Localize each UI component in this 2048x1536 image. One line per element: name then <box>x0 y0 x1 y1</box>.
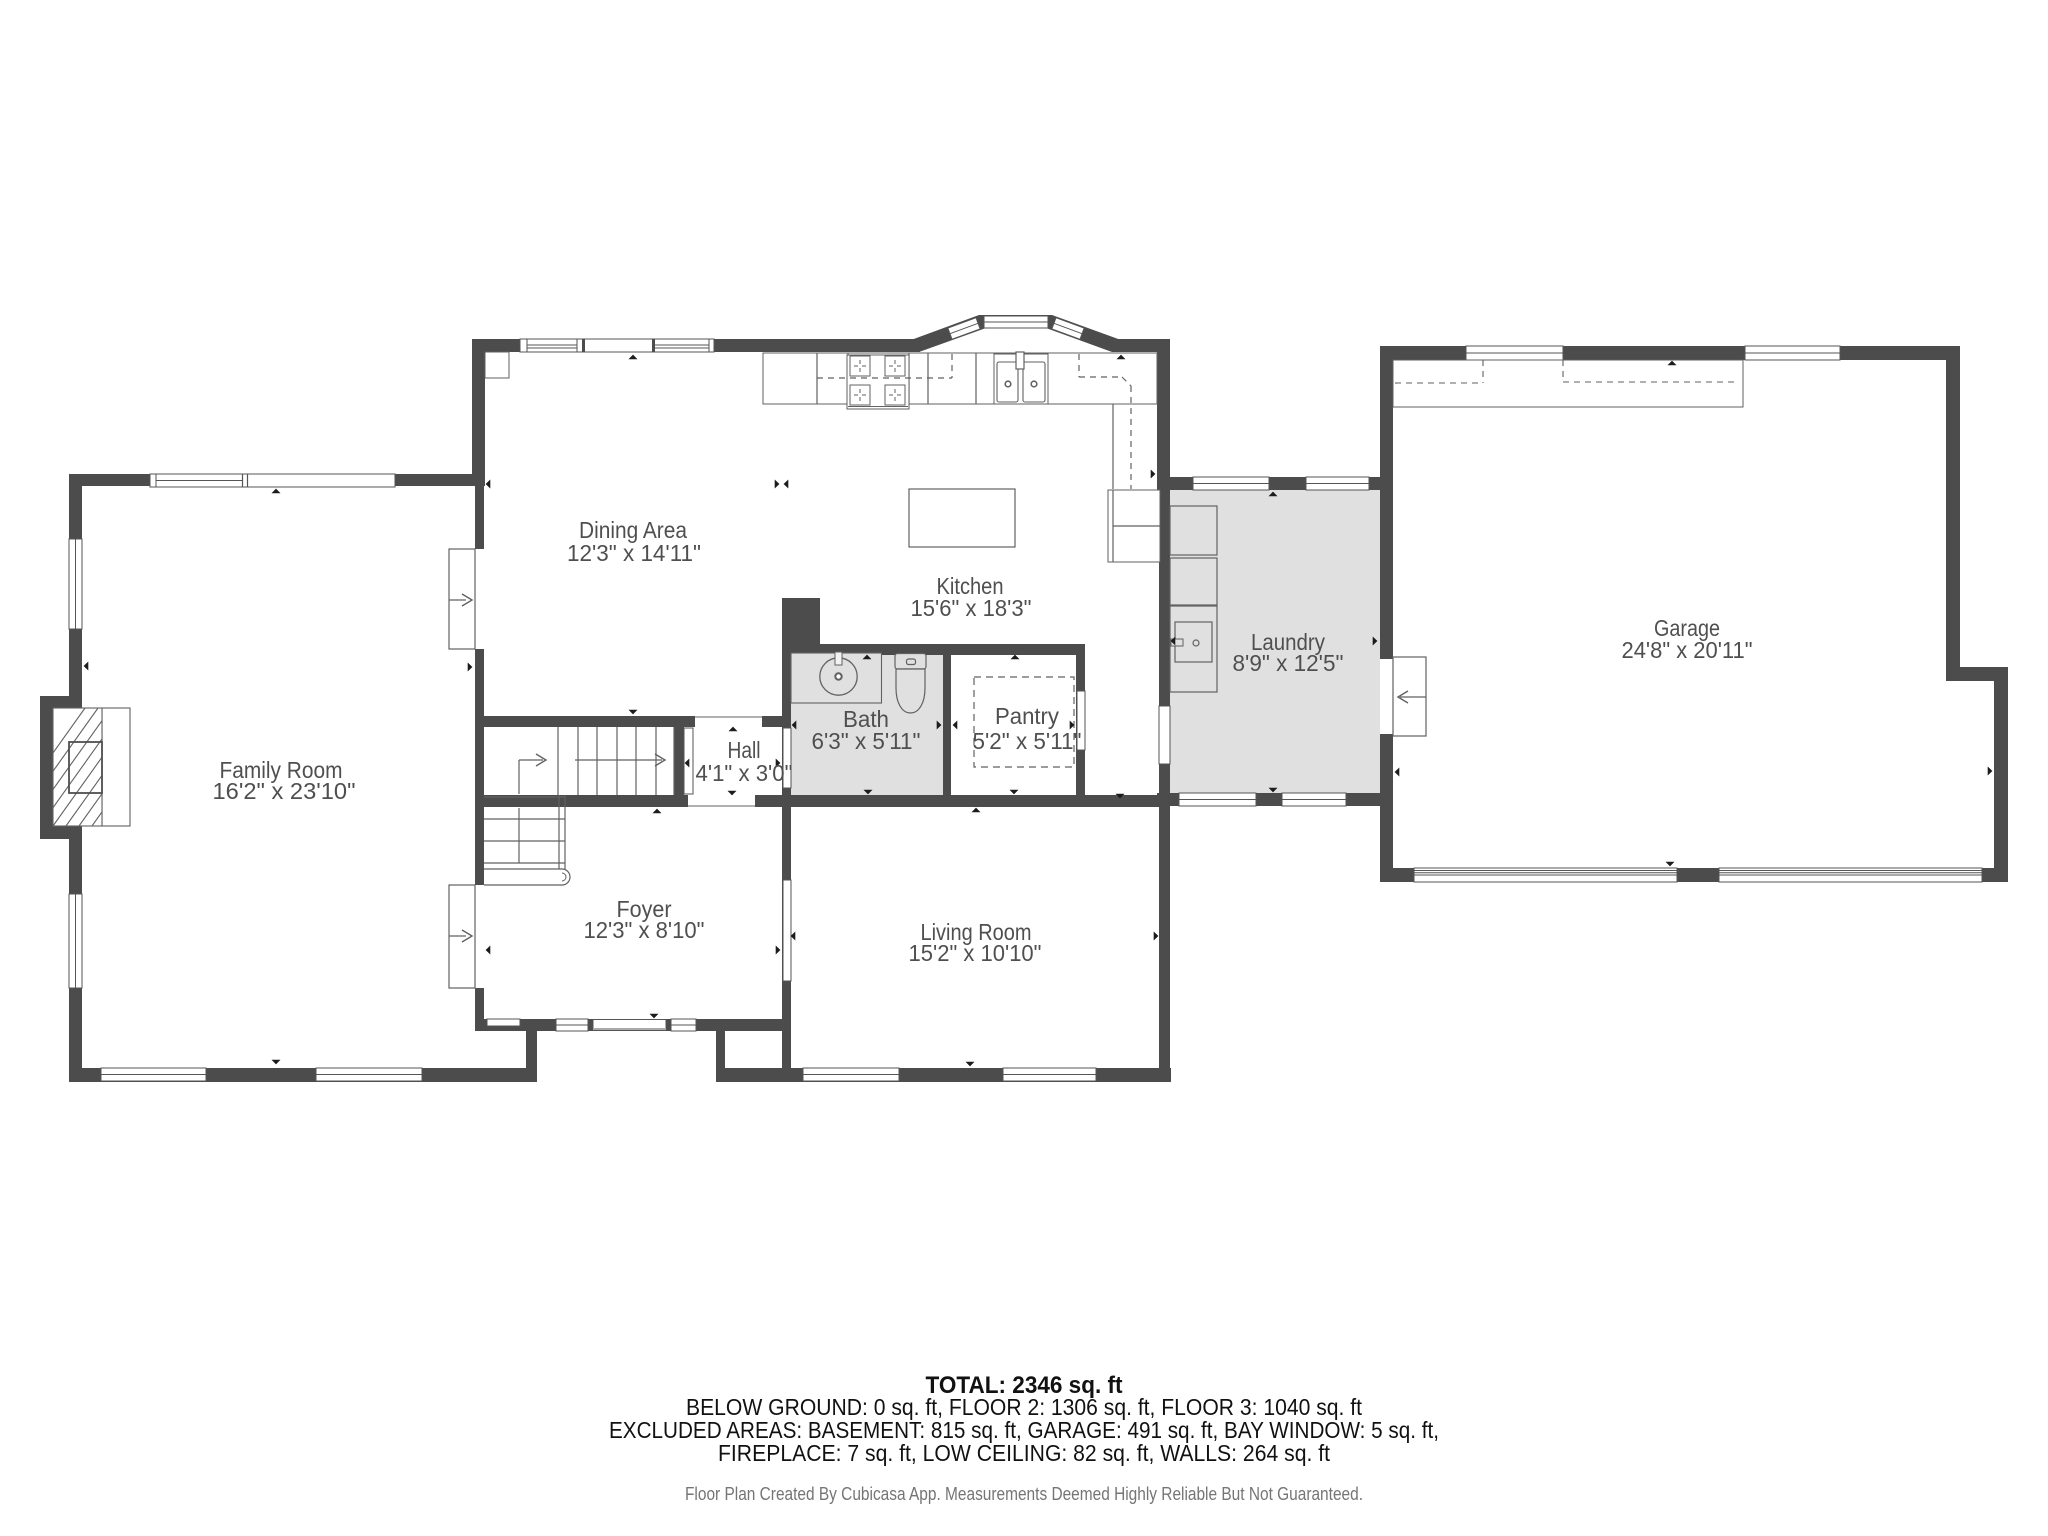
svg-text:16'2" x 23'10": 16'2" x 23'10" <box>213 778 356 804</box>
svg-text:12'3" x 14'11": 12'3" x 14'11" <box>567 540 701 566</box>
svg-text:Floor Plan Created By Cubicasa: Floor Plan Created By Cubicasa App. Meas… <box>685 1484 1363 1504</box>
svg-text:5'2" x 5'11": 5'2" x 5'11" <box>973 728 1082 754</box>
svg-text:8'9" x 12'5": 8'9" x 12'5" <box>1233 650 1344 676</box>
svg-text:15'6" x 18'3": 15'6" x 18'3" <box>911 595 1032 621</box>
svg-text:FIREPLACE: 7 sq. ft, LOW CEILI: FIREPLACE: 7 sq. ft, LOW CEILING: 82 sq.… <box>718 1440 1331 1466</box>
svg-text:24'8" x 20'11": 24'8" x 20'11" <box>1622 637 1753 663</box>
svg-text:Pantry: Pantry <box>995 703 1059 729</box>
svg-text:12'3" x 8'10": 12'3" x 8'10" <box>584 917 705 943</box>
svg-text:6'3" x 5'11": 6'3" x 5'11" <box>812 728 921 754</box>
svg-text:4'1" x 3'0": 4'1" x 3'0" <box>696 760 793 786</box>
svg-text:15'2" x 10'10": 15'2" x 10'10" <box>909 940 1042 966</box>
